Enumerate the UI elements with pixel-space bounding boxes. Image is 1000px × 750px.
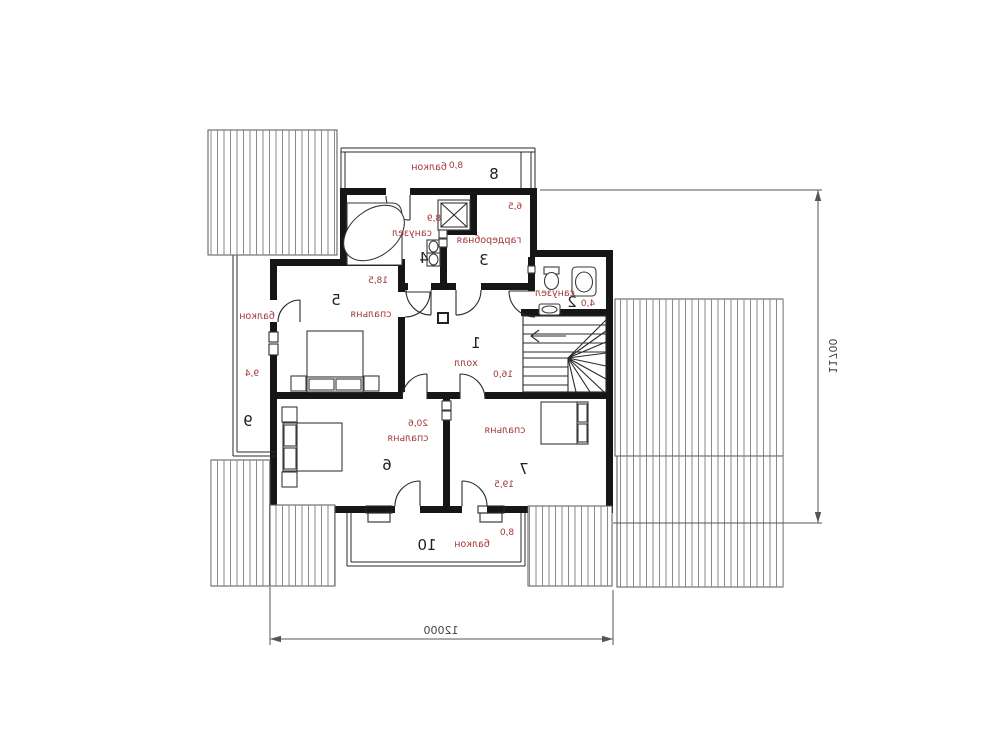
room-8-number: 8: [489, 165, 499, 183]
room-7-number: 7: [519, 460, 529, 478]
room-1-area: 16,0: [493, 370, 513, 380]
vent-shaft: [528, 266, 535, 273]
stairs-direction-arrow: [531, 330, 566, 342]
toilet-bowl: [545, 273, 559, 290]
nightstand: [282, 407, 297, 422]
roof-hatch-right-top: [615, 299, 783, 456]
room-6-area: 20,6: [408, 419, 428, 429]
room-2-area: 4,0: [581, 299, 596, 309]
room-7-area: 19,5: [494, 480, 514, 490]
hall-column: [438, 313, 448, 323]
vent-shaft: [439, 230, 447, 238]
floor-plan-page: 12000 11700 1 холл 16,0 2 санузел 4,0 3 …: [0, 0, 1000, 750]
vent-shaft: [439, 239, 447, 247]
room-5-number: 5: [331, 291, 341, 309]
room-3-name: гардеробная: [457, 235, 522, 246]
room-1-name: холл: [454, 358, 478, 369]
room-9-name: балкон: [239, 311, 275, 322]
bed-room5: [291, 331, 379, 392]
room-2-name: санузел: [535, 288, 575, 299]
room-9-number: 9: [243, 412, 253, 430]
dimension-height-label: 11700: [826, 339, 839, 374]
room-4-name: санузел: [392, 228, 432, 239]
vents-partition-6-7: [442, 401, 451, 420]
dimension-bottom-12000: 12000: [270, 587, 613, 645]
bed-room7: [541, 402, 588, 444]
room-1-number: 1: [471, 334, 481, 352]
room-4-area: 8,9: [427, 214, 442, 224]
room-3-area: 6,5: [508, 202, 522, 212]
room-10-area: 8,0: [500, 528, 515, 538]
floor-plan-canvas: 12000 11700 1 холл 16,0 2 санузел 4,0 3 …: [0, 0, 1000, 750]
dimension-width-label: 12000: [424, 624, 459, 637]
nightstand: [364, 376, 379, 391]
room-4-number: 4: [419, 249, 429, 267]
roof-hatch-bottom-middle: [528, 506, 612, 586]
room-3-number: 3: [479, 251, 489, 269]
staircase: [523, 316, 606, 392]
room-6-name: спальня: [388, 433, 429, 444]
room-10-name: балкон: [454, 539, 490, 550]
room-8-area: 8,0: [449, 161, 464, 171]
bed-room6: [282, 407, 342, 487]
room-5-name: спальня: [351, 309, 392, 320]
window-room5-to-balcony9: [269, 332, 278, 355]
roof-hatch-right-bottom: [617, 456, 783, 587]
room-8-name: балкон: [411, 162, 447, 173]
nightstand: [282, 472, 297, 487]
room-6-number: 6: [382, 456, 392, 474]
roof-hatch-top-left: [208, 130, 337, 255]
room-7-name: спальня: [485, 425, 526, 436]
nightstand: [291, 376, 306, 391]
room-5-area: 18,5: [368, 276, 388, 286]
room-9-area: 9,4: [245, 369, 260, 379]
room-10-number: 10: [417, 536, 436, 554]
